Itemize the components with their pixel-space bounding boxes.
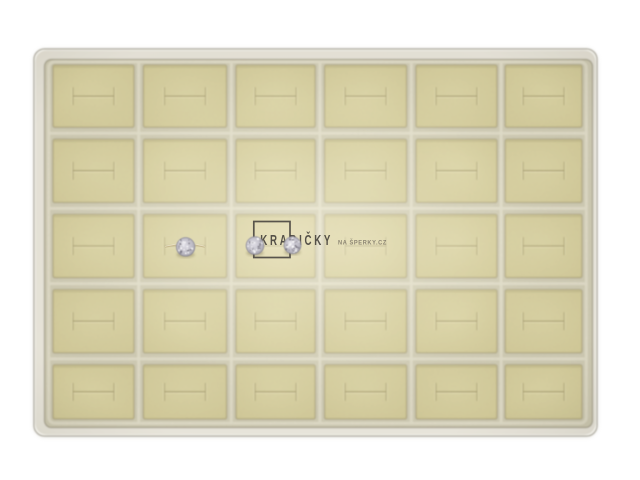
svg-text:NA ŠPERKY.CZ: NA ŠPERKY.CZ bbox=[338, 239, 387, 247]
